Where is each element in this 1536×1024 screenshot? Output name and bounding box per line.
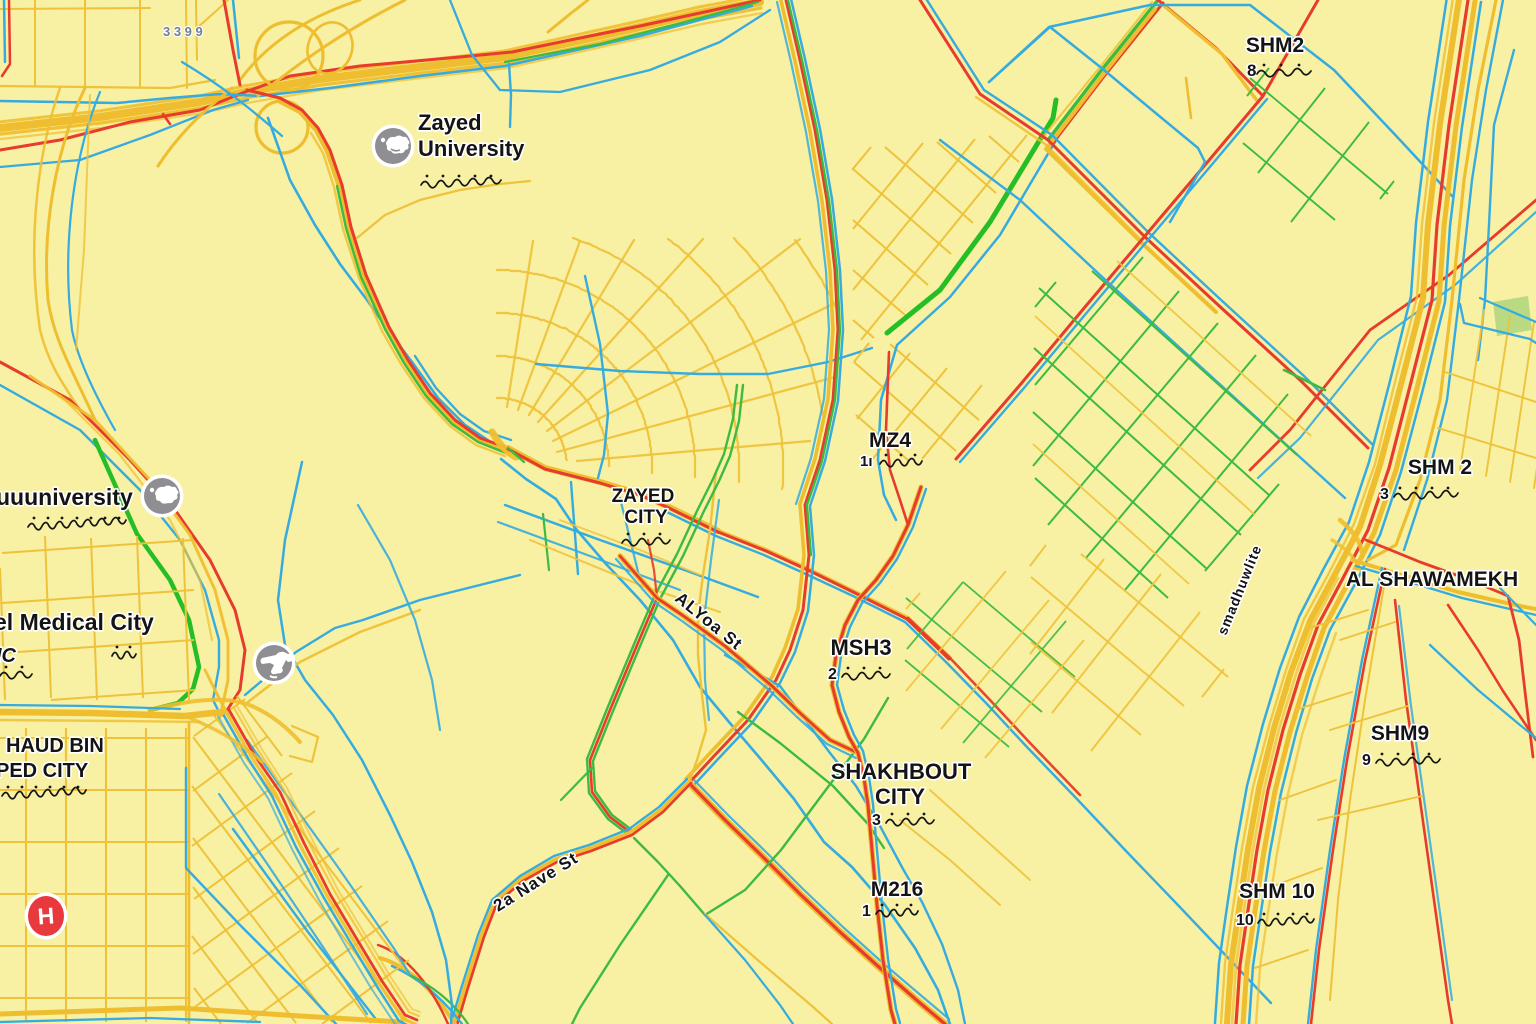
svg-text:el Medical City: el Medical City xyxy=(0,609,154,635)
svg-text:AL SHAWAMEKH: AL SHAWAMEKH xyxy=(1346,568,1518,591)
svg-text:SHM 10: SHM 10 xyxy=(1239,880,1315,903)
svg-text:Zayed: Zayed xyxy=(418,110,482,135)
svg-text:9: 9 xyxy=(1362,752,1371,769)
svg-text:uuuniversity: uuuniversity xyxy=(0,484,133,510)
svg-text:H: H xyxy=(37,902,55,929)
svg-text:1ı: 1ı xyxy=(860,453,873,470)
svg-text:PED CITY: PED CITY xyxy=(0,760,89,782)
svg-text:1: 1 xyxy=(862,903,871,920)
svg-text:3: 3 xyxy=(1380,486,1389,503)
svg-text:2: 2 xyxy=(828,666,837,683)
svg-text:M216: M216 xyxy=(871,878,924,901)
svg-text:ZAYED: ZAYED xyxy=(612,486,675,507)
svg-text:SHAKHBOUT: SHAKHBOUT xyxy=(831,759,972,784)
svg-text:SHM 2: SHM 2 xyxy=(1408,456,1472,479)
svg-text:IC: IC xyxy=(0,645,17,667)
svg-text:HAUD BIN: HAUD BIN xyxy=(6,735,104,757)
svg-text:CITY: CITY xyxy=(875,784,925,809)
svg-text:8: 8 xyxy=(1247,61,1256,80)
svg-text:SHM9: SHM9 xyxy=(1371,722,1429,745)
svg-text:SHM2: SHM2 xyxy=(1246,34,1304,57)
svg-text:CITY: CITY xyxy=(624,507,668,528)
svg-text:3: 3 xyxy=(872,812,881,829)
svg-text:University: University xyxy=(418,136,525,161)
svg-text:3 3 9 9: 3 3 9 9 xyxy=(163,24,203,39)
svg-text:10: 10 xyxy=(1236,912,1254,929)
svg-text:MZ4: MZ4 xyxy=(869,429,911,452)
svg-text:MSH3: MSH3 xyxy=(830,635,891,660)
